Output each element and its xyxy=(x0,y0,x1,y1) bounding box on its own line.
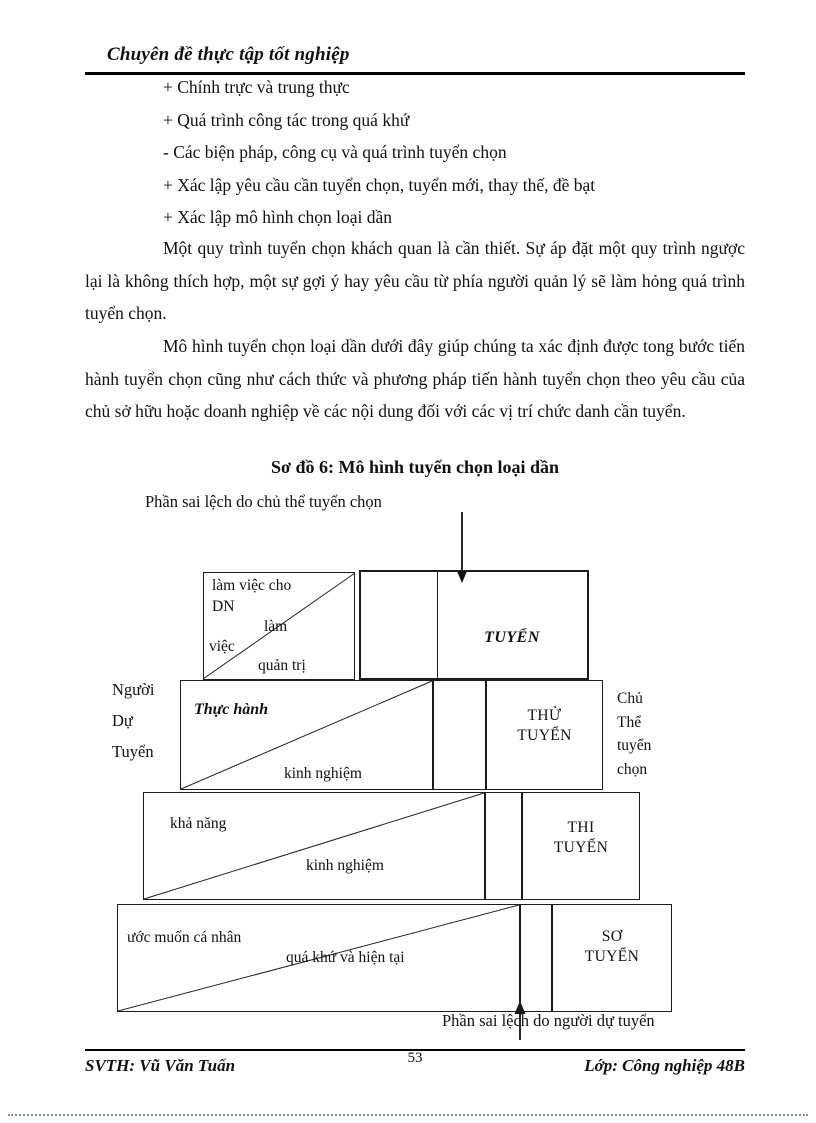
candidate-box-lam-viec: làm việc cho DN làm việc quản trị xyxy=(203,572,355,680)
stage-label: TUYỂN xyxy=(553,947,671,967)
label-line: tuyển xyxy=(617,734,651,758)
box-label: kinh nghiệm xyxy=(284,765,362,783)
stage-label: TUYỂN xyxy=(437,629,587,647)
stage-label: THI xyxy=(523,818,639,838)
box-label: kinh nghiệm xyxy=(306,857,384,875)
box-divider xyxy=(437,572,438,678)
label-line: Tuyển xyxy=(112,736,154,767)
stage-box-thu-tuyen: THỬ TUYỂN xyxy=(486,680,603,790)
label-line: Dự xyxy=(112,705,154,736)
candidate-box-kha-nang: khả năng kinh nghiệm xyxy=(143,792,485,900)
candidate-box-thuc-hanh: Thực hành kinh nghiệm xyxy=(180,680,433,790)
spacer-box xyxy=(520,904,552,1012)
spacer-box xyxy=(433,680,486,790)
box-label: việc xyxy=(209,638,235,656)
stage-box-tuyen: TUYỂN xyxy=(359,570,589,680)
spacer-box xyxy=(485,792,522,900)
box-label: ước muốn cá nhân xyxy=(127,929,241,947)
stage-label: THỬ xyxy=(487,706,602,726)
box-label: DN xyxy=(212,598,234,616)
label-line: Thể xyxy=(617,711,651,735)
right-axis-label-chu-the-tuyen-chon: Chủ Thể tuyển chọn xyxy=(617,687,651,781)
label-line: chọn xyxy=(617,758,651,782)
label-line: Chủ xyxy=(617,687,651,711)
diagram-bottom-caption: Phần sai lệch do người dự tuyển xyxy=(442,1011,655,1031)
box-label: làm xyxy=(264,618,287,636)
candidate-box-uoc-muon: ước muốn cá nhân quá khứ và hiện tại xyxy=(117,904,520,1012)
box-label: quản trị xyxy=(258,657,306,675)
stage-label: SƠ xyxy=(553,927,671,947)
box-label: quá khứ và hiện tại xyxy=(286,949,405,967)
stage-box-thi-tuyen: THI TUYỂN xyxy=(522,792,640,900)
stage-label: TUYỂN xyxy=(487,726,602,746)
document-page: Chuyên đề thực tập tốt nghiệp + Chính tr… xyxy=(0,0,816,1123)
left-axis-label-nguoi-du-tuyen: Người Dự Tuyển xyxy=(112,674,154,767)
box-label: khả năng xyxy=(170,815,226,833)
box-label: Thực hành xyxy=(194,701,268,719)
box-label: làm việc cho xyxy=(212,577,291,595)
stage-box-so-tuyen: SƠ TUYỂN xyxy=(552,904,672,1012)
label-line: Người xyxy=(112,674,154,705)
stage-label: TUYỂN xyxy=(523,838,639,858)
